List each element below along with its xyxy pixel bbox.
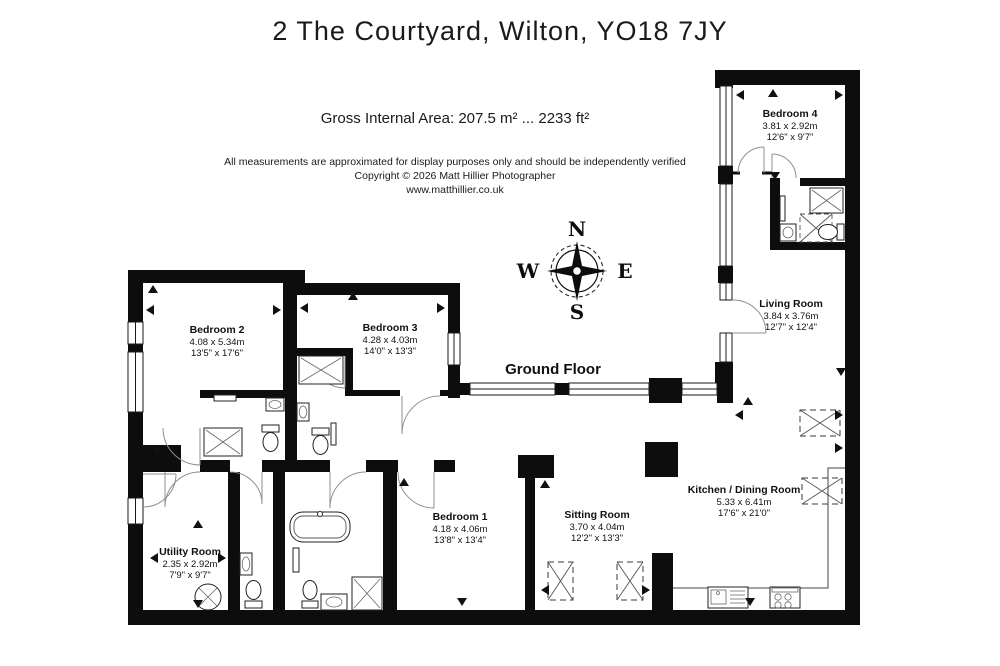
skylight-icon bbox=[548, 562, 573, 600]
shower-icon bbox=[810, 188, 843, 213]
windows bbox=[128, 86, 732, 524]
window bbox=[128, 498, 143, 524]
sink-icon bbox=[266, 398, 284, 411]
dimension-arrows bbox=[146, 89, 846, 608]
room-metric: 3.70 x 4.04m bbox=[564, 522, 629, 533]
shelf-icon bbox=[293, 548, 299, 572]
door-arc bbox=[738, 147, 764, 173]
room-label-bedroom-3: Bedroom 3 4.28 x 4.03m 14'0" x 13'3" bbox=[363, 322, 418, 357]
window bbox=[128, 352, 143, 412]
door-arc bbox=[143, 474, 176, 507]
room-name: Bedroom 1 bbox=[433, 511, 488, 524]
kitchen-sink-icon bbox=[708, 587, 748, 608]
skylight-icon bbox=[617, 562, 643, 600]
room-name: Bedroom 2 bbox=[190, 324, 245, 337]
room-label-living-room: Living Room 3.84 x 3.76m 12'7" x 12'4" bbox=[759, 298, 823, 333]
room-metric: 4.08 x 5.34m bbox=[190, 337, 245, 348]
window bbox=[448, 333, 460, 365]
toilet-icon bbox=[302, 581, 318, 609]
room-imperial: 12'7" x 12'4" bbox=[759, 322, 823, 333]
room-name: Kitchen / Dining Room bbox=[688, 484, 801, 497]
room-name: Sitting Room bbox=[564, 509, 629, 522]
room-metric: 3.81 x 2.92m bbox=[763, 121, 818, 132]
skylight-icon bbox=[802, 478, 842, 504]
compass-west-label: W bbox=[516, 259, 540, 283]
shelf-icon bbox=[331, 423, 336, 445]
room-label-utility-room: Utility Room 2.35 x 2.92m 7'9" x 9'7" bbox=[159, 546, 221, 581]
compass-south-label: S bbox=[570, 300, 584, 324]
room-label-bedroom-1: Bedroom 1 4.18 x 4.06m 13'8" x 13'4" bbox=[433, 511, 488, 546]
room-metric: 4.18 x 4.06m bbox=[433, 524, 488, 535]
skylight-icon bbox=[800, 410, 840, 436]
window bbox=[720, 86, 732, 166]
door-arc bbox=[330, 472, 366, 508]
window bbox=[720, 283, 732, 300]
door-arc bbox=[165, 472, 200, 507]
room-label-kitchen-dining-room: Kitchen / Dining Room 5.33 x 6.41m 17'6"… bbox=[688, 484, 801, 519]
compass-east-label: E bbox=[617, 259, 632, 283]
toilet-icon bbox=[312, 428, 329, 455]
room-imperial: 12'2" x 13'3" bbox=[564, 533, 629, 544]
window bbox=[569, 383, 649, 395]
room-name: Bedroom 4 bbox=[763, 108, 818, 121]
sink-icon bbox=[297, 403, 309, 421]
door-arc bbox=[402, 396, 440, 434]
bathtub-icon bbox=[290, 512, 350, 543]
room-imperial: 12'6" x 9'7" bbox=[763, 132, 818, 143]
room-label-bedroom-2: Bedroom 2 4.08 x 5.34m 13'5" x 17'6" bbox=[190, 324, 245, 359]
shower-icon bbox=[299, 356, 343, 384]
toilet-icon bbox=[245, 581, 262, 609]
room-metric: 2.35 x 2.92m bbox=[159, 559, 221, 570]
room-metric: 5.33 x 6.41m bbox=[688, 497, 801, 508]
sink-icon bbox=[321, 594, 347, 610]
window bbox=[470, 383, 555, 395]
window bbox=[720, 184, 732, 266]
room-imperial: 7'9" x 9'7" bbox=[159, 570, 221, 581]
shower-icon bbox=[352, 577, 382, 610]
floor-plan-drawing: N E S W bbox=[0, 0, 1000, 666]
room-name: Utility Room bbox=[159, 546, 221, 559]
room-imperial: 13'5" x 17'6" bbox=[190, 348, 245, 359]
shelf-icon bbox=[780, 196, 785, 221]
toilet-icon bbox=[819, 224, 845, 240]
room-label-bedroom-4: Bedroom 4 3.81 x 2.92m 12'6" x 9'7" bbox=[763, 108, 818, 143]
shower-icon bbox=[204, 428, 242, 456]
door-arc bbox=[398, 472, 434, 508]
room-imperial: 14'0" x 13'3" bbox=[363, 346, 418, 357]
sink-icon bbox=[240, 553, 252, 575]
compass-north-label: N bbox=[568, 217, 586, 241]
window bbox=[682, 383, 717, 395]
compass-rose: N E S W bbox=[516, 217, 633, 324]
room-imperial: 13'8" x 13'4" bbox=[433, 535, 488, 546]
toilet-icon bbox=[262, 425, 279, 452]
hob-icon bbox=[770, 587, 800, 608]
room-metric: 3.84 x 3.76m bbox=[759, 311, 823, 322]
sink-icon bbox=[780, 224, 796, 241]
room-name: Living Room bbox=[759, 298, 823, 311]
window bbox=[128, 322, 143, 344]
room-label-sitting-room: Sitting Room 3.70 x 4.04m 12'2" x 13'3" bbox=[564, 509, 629, 544]
room-name: Bedroom 3 bbox=[363, 322, 418, 335]
room-metric: 4.28 x 4.03m bbox=[363, 335, 418, 346]
window bbox=[720, 333, 732, 362]
shelf-icon bbox=[214, 395, 236, 401]
room-imperial: 17'6" x 21'0" bbox=[688, 508, 801, 519]
floorplan-page: 2 The Courtyard, Wilton, YO18 7JY Gross … bbox=[0, 0, 1000, 666]
